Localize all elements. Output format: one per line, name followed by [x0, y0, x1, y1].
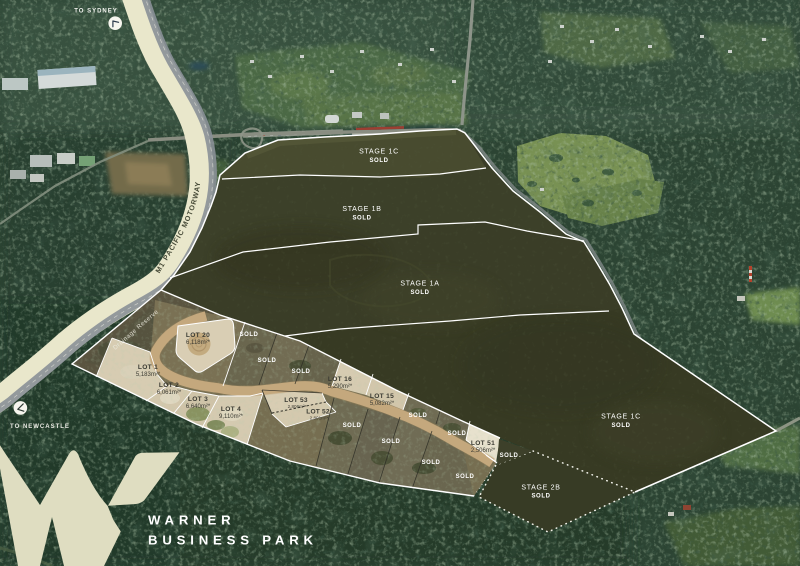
- svg-text:6,118m²*: 6,118m²*: [186, 340, 211, 346]
- svg-text:STAGE 1B: STAGE 1B: [342, 206, 381, 213]
- svg-text:LOT 52: LOT 52: [306, 409, 330, 416]
- svg-text:SOLD: SOLD: [382, 439, 401, 445]
- svg-text:SOLD: SOLD: [409, 413, 428, 419]
- svg-text:LOT 1: LOT 1: [138, 364, 158, 371]
- svg-text:STAGE 1A: STAGE 1A: [400, 281, 439, 288]
- svg-text:2,806m²*: 2,806m²*: [288, 404, 307, 409]
- svg-text:SOLD: SOLD: [352, 216, 371, 222]
- svg-text:SOLD: SOLD: [422, 460, 441, 466]
- svg-text:LOT 53: LOT 53: [284, 397, 308, 404]
- svg-text:LOT 20: LOT 20: [186, 332, 210, 339]
- svg-text:2,506m²*: 2,506m²*: [471, 448, 496, 454]
- svg-text:LOT 3: LOT 3: [188, 396, 208, 403]
- svg-text:5,082m²*: 5,082m²*: [370, 401, 395, 407]
- svg-text:SOLD: SOLD: [240, 332, 259, 338]
- svg-text:SOLD: SOLD: [369, 158, 388, 164]
- svg-text:LOT 51: LOT 51: [471, 440, 495, 447]
- svg-text:LOT 16: LOT 16: [328, 376, 352, 383]
- svg-text:TO NEWCASTLE: TO NEWCASTLE: [10, 424, 70, 430]
- svg-text:BUSINESS PARK: BUSINESS PARK: [148, 533, 318, 548]
- svg-text:LOT 4: LOT 4: [221, 406, 241, 413]
- svg-text:STAGE 2B: STAGE 2B: [521, 485, 560, 492]
- svg-text:5,290m²*: 5,290m²*: [328, 384, 353, 390]
- svg-text:SOLD: SOLD: [258, 358, 277, 364]
- svg-text:SOLD: SOLD: [611, 423, 630, 429]
- svg-text:LOT 15: LOT 15: [370, 393, 394, 400]
- svg-text:5,183m²*: 5,183m²*: [136, 372, 161, 378]
- svg-text:SOLD: SOLD: [448, 431, 467, 437]
- svg-text:6,061m²*: 6,061m²*: [157, 390, 182, 396]
- svg-text:SOLD: SOLD: [456, 474, 475, 480]
- svg-text:LOT 2: LOT 2: [159, 382, 179, 389]
- svg-text:SOLD: SOLD: [292, 369, 311, 375]
- svg-text:STAGE 1C: STAGE 1C: [601, 414, 641, 421]
- svg-text:6,640m²*: 6,640m²*: [186, 404, 211, 410]
- svg-text:STAGE 1C: STAGE 1C: [359, 149, 399, 156]
- svg-text:SOLD: SOLD: [500, 453, 519, 459]
- svg-text:SOLD: SOLD: [531, 494, 550, 500]
- svg-text:9,110m²*: 9,110m²*: [219, 414, 244, 420]
- svg-text:2,801m²*: 2,801m²*: [310, 416, 329, 421]
- svg-text:TO SYDNEY: TO SYDNEY: [74, 9, 118, 15]
- svg-text:SOLD: SOLD: [343, 423, 362, 429]
- svg-text:WARNER: WARNER: [148, 513, 235, 528]
- svg-text:SOLD: SOLD: [410, 290, 429, 296]
